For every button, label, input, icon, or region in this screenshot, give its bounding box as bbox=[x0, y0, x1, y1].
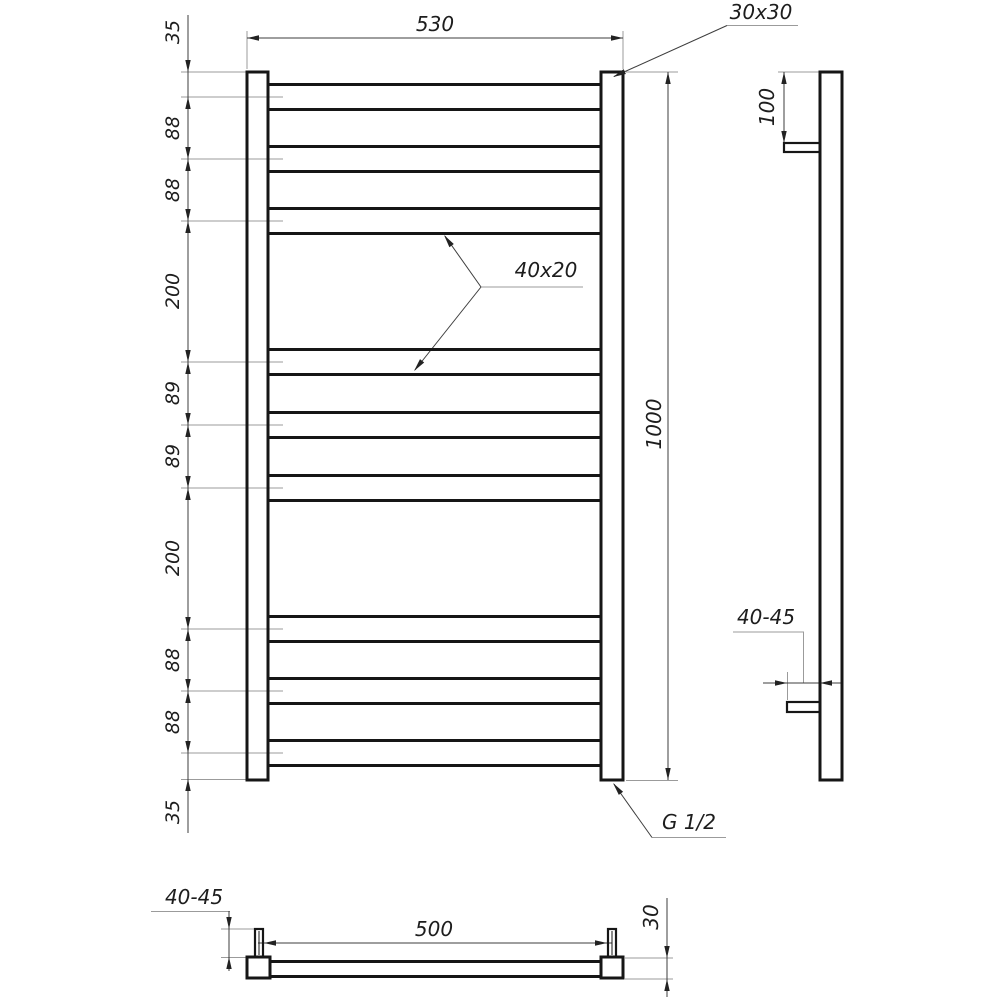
chain-label-8: 88 bbox=[162, 710, 184, 734]
right-post bbox=[601, 72, 623, 780]
label-40-45-bottom: 40-45 bbox=[165, 885, 223, 909]
arrowheads bbox=[185, 35, 832, 991]
rung bbox=[268, 413, 601, 438]
label-30: 30 bbox=[639, 904, 663, 929]
chain-label-2: 88 bbox=[162, 178, 184, 202]
rung bbox=[268, 350, 601, 375]
drawing-canvas: 530 30x30 40x20 G 1/2 1000 35 88 88 200 … bbox=[0, 0, 1000, 1000]
label-1000: 1000 bbox=[642, 399, 666, 450]
rung bbox=[268, 209, 601, 234]
rung bbox=[268, 741, 601, 766]
chain-label-9: 35 bbox=[162, 800, 184, 824]
rung bbox=[268, 147, 601, 172]
rungs bbox=[268, 85, 601, 766]
side-top-bracket bbox=[784, 143, 820, 152]
chain-label-4: 89 bbox=[162, 381, 184, 405]
chain-label-6: 200 bbox=[162, 540, 184, 576]
rung bbox=[268, 85, 601, 110]
rung bbox=[268, 617, 601, 642]
chain-label-1: 88 bbox=[162, 116, 184, 140]
rung bbox=[268, 679, 601, 704]
label-500: 500 bbox=[415, 917, 453, 941]
chain-label-7: 88 bbox=[162, 648, 184, 672]
technical-drawing: 530 30x30 40x20 G 1/2 1000 35 88 88 200 … bbox=[0, 0, 1000, 1000]
dimension-lines bbox=[188, 15, 842, 997]
side-view bbox=[784, 72, 842, 780]
bottom-right-post bbox=[601, 957, 623, 978]
bottom-left-post bbox=[247, 957, 270, 978]
chain-label-5: 89 bbox=[162, 444, 184, 468]
side-bottom-bracket bbox=[787, 702, 820, 712]
dimension-labels: 530 30x30 40x20 G 1/2 1000 35 88 88 200 … bbox=[162, 0, 795, 941]
front-view bbox=[247, 72, 623, 780]
chain-label-3: 200 bbox=[162, 273, 184, 309]
label-30x30: 30x30 bbox=[730, 0, 793, 24]
extension-lines bbox=[151, 26, 819, 980]
leader-40x20-lower bbox=[415, 287, 481, 370]
left-post bbox=[247, 72, 268, 780]
side-post bbox=[820, 72, 842, 780]
leader-30x30 bbox=[614, 26, 727, 77]
label-g12: G 1/2 bbox=[662, 810, 716, 834]
rung bbox=[268, 476, 601, 501]
label-100: 100 bbox=[755, 88, 779, 126]
label-530: 530 bbox=[416, 12, 454, 36]
label-40-45-side: 40-45 bbox=[737, 605, 795, 629]
label-40x20: 40x20 bbox=[515, 258, 578, 282]
chain-label-0: 35 bbox=[162, 20, 184, 44]
